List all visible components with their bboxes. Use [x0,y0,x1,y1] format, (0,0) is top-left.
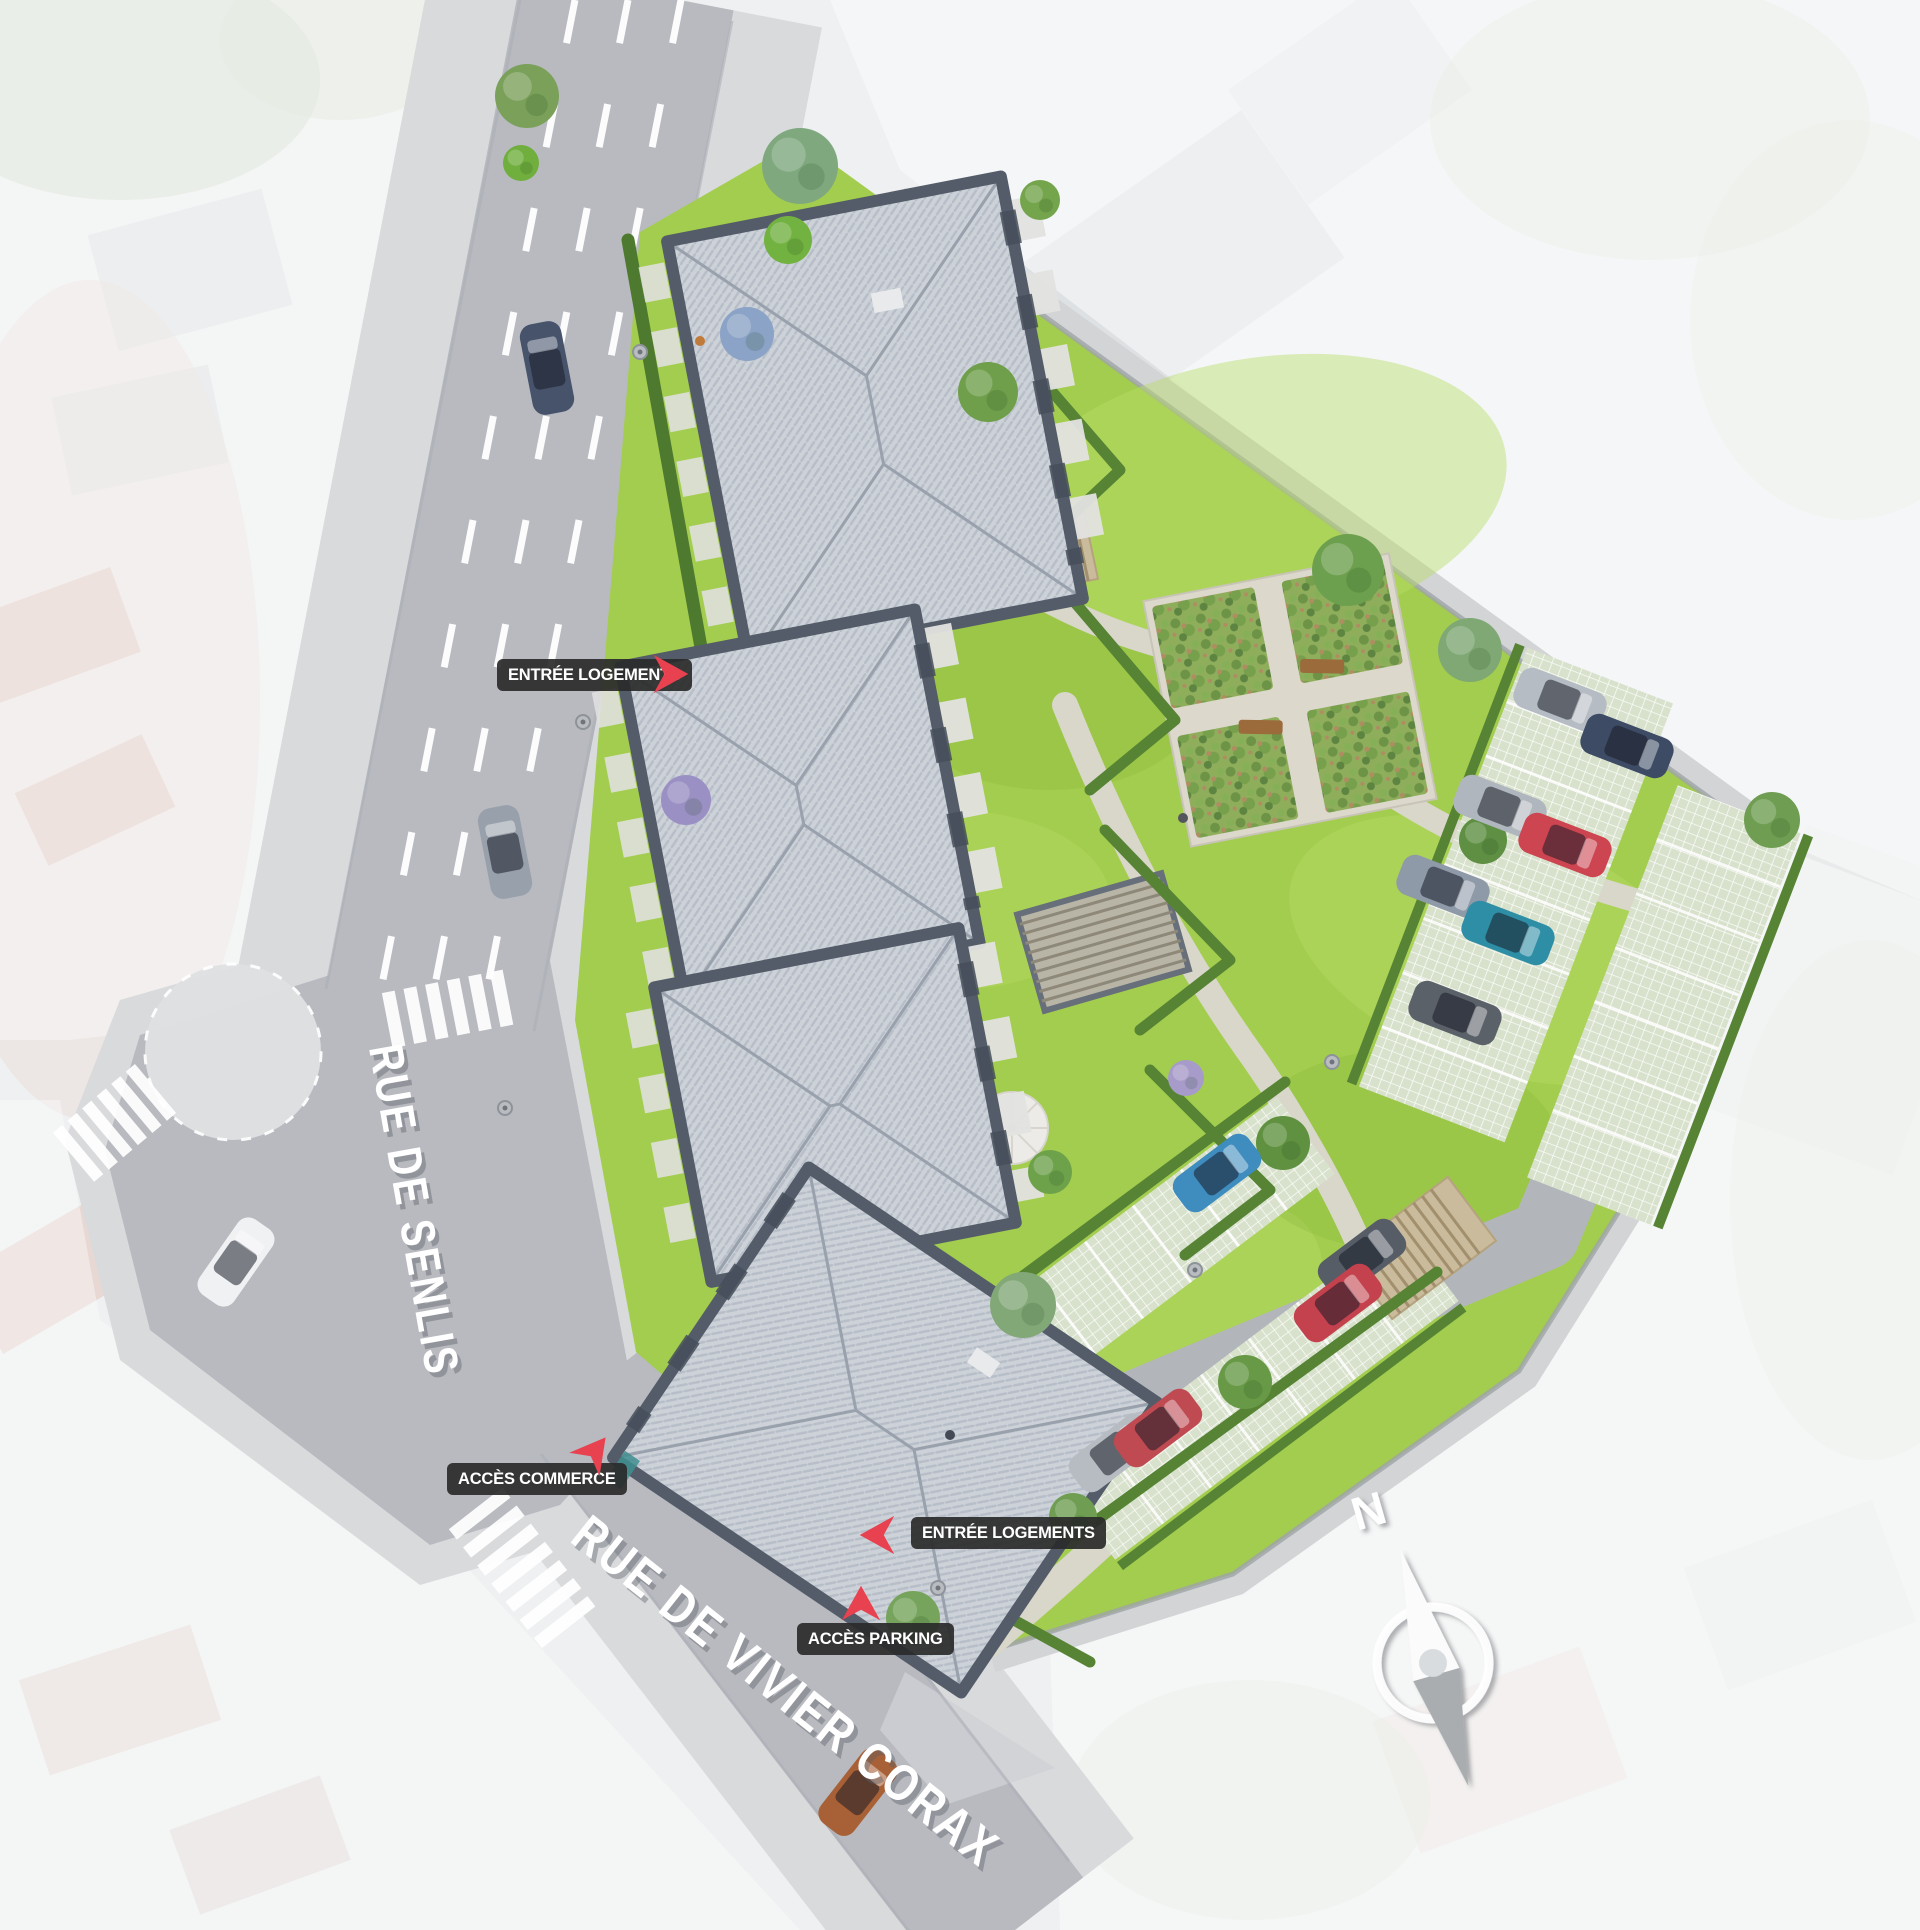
tree-icon [990,1272,1056,1338]
person-icon [1178,813,1188,823]
central-plaza [1143,553,1436,846]
tree-icon [1744,792,1800,848]
tree-icon [1312,534,1384,606]
label-acces-parking: ACCÈS PARKING [797,1623,954,1655]
bench [1300,659,1344,674]
bench [1239,720,1283,735]
tree-icon [1256,1116,1310,1170]
tree-icon [720,307,774,361]
tree-icon [1438,618,1502,682]
street-lamp-icon [1188,1263,1202,1277]
tree-icon [958,362,1018,422]
tree-icon [1028,1150,1072,1194]
street-lamp-icon [633,345,647,359]
tree-icon [1218,1355,1272,1409]
person-icon [945,1430,955,1440]
arrow-entree-logements-sud-icon [854,1512,900,1558]
street-lamp-icon [576,715,590,729]
street-lamp-icon [931,1581,945,1595]
tree-icon [1020,180,1060,220]
label-entree-logements-sud: ENTRÉE LOGEMENTS [911,1517,1106,1549]
tree-icon [495,64,559,128]
arrow-acces-parking-icon [838,1580,884,1626]
site-plan-svg: RUE DE SENLIS RUE DE SENLIS RUE DE VIVIE… [0,0,1920,1930]
street-lamp-icon [1325,1055,1339,1069]
tree-icon [762,128,838,204]
arrow-entree-logements-nord-icon [648,651,694,697]
person-icon [695,336,705,346]
tree-icon [1168,1060,1204,1096]
tree-icon [661,775,711,825]
tree-icon [764,216,812,264]
site-plan-stage: RUE DE SENLIS RUE DE SENLIS RUE DE VIVIE… [0,0,1920,1930]
tree-icon [503,145,539,181]
street-lamp-icon [498,1101,512,1115]
